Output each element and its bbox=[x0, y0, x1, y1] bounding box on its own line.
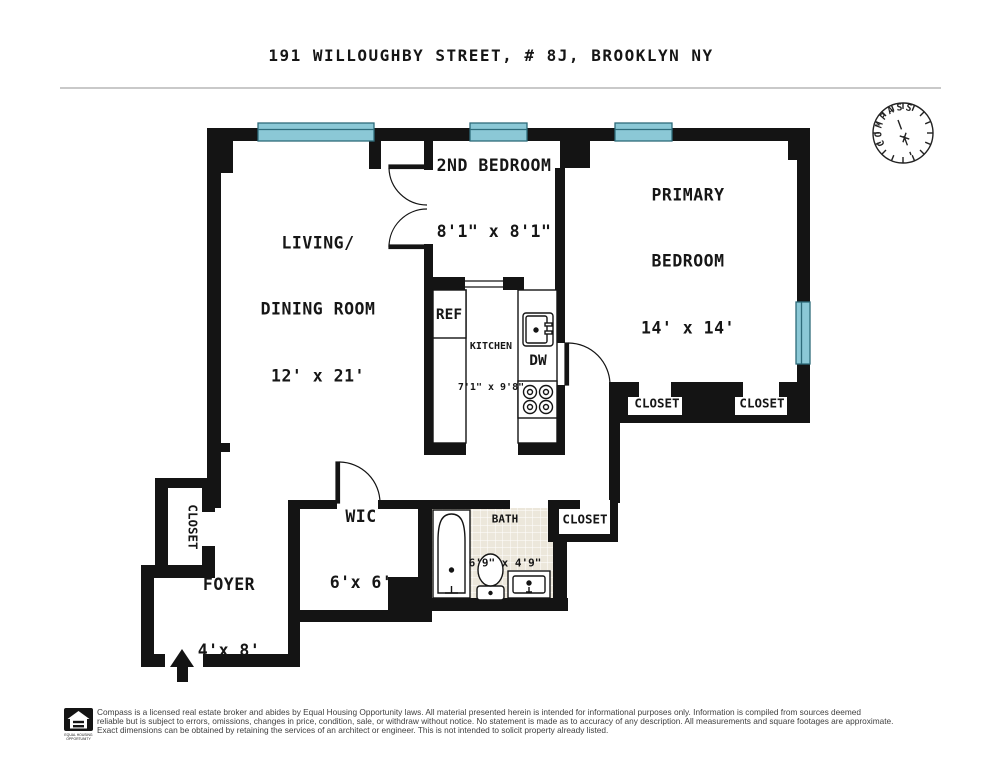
primary-bedroom-door bbox=[565, 343, 610, 385]
svg-text:OPPORTUNITY: OPPORTUNITY bbox=[66, 737, 91, 741]
label-bath: BATH 6'9" x 4'9" bbox=[469, 483, 542, 602]
label-dishwasher: DW bbox=[529, 352, 546, 372]
label-primary-bedroom: PRIMARY BEDROOM 14' x 14' bbox=[641, 140, 735, 385]
floorplan-page: 191 WILLOUGHBY STREET, # 8J, BROOKLYN NY bbox=[0, 0, 1000, 772]
kitchen-sink bbox=[523, 313, 553, 346]
bathtub bbox=[433, 510, 470, 598]
label-foyer: FOYER 4'x 8' bbox=[198, 529, 261, 707]
label-closet-hall: CLOSET bbox=[562, 512, 607, 529]
entry-arrow-icon bbox=[170, 649, 194, 682]
french-doors-2nd-bedroom bbox=[389, 165, 427, 249]
label-closet-primary-2: CLOSET bbox=[739, 396, 784, 413]
label-closet-entry: CLOSET bbox=[184, 504, 201, 549]
equal-housing-logo: EQUAL HOUSING OPPORTUNITY bbox=[63, 706, 95, 746]
label-2nd-bedroom: 2ND BEDROOM 8'1" x 8'1" bbox=[437, 110, 552, 288]
label-kitchen: KITCHEN 7'1" x 9'8" bbox=[458, 313, 524, 421]
label-refrigerator: REF bbox=[436, 306, 462, 326]
label-wic: WIC 6'x 6' bbox=[330, 461, 393, 639]
label-living-dining: LIVING/ DINING ROOM 12' x 21' bbox=[261, 188, 376, 433]
label-closet-primary-1: CLOSET bbox=[634, 396, 679, 413]
disclaimer-line-3: Exact dimensions can be obtained by reta… bbox=[97, 726, 957, 735]
